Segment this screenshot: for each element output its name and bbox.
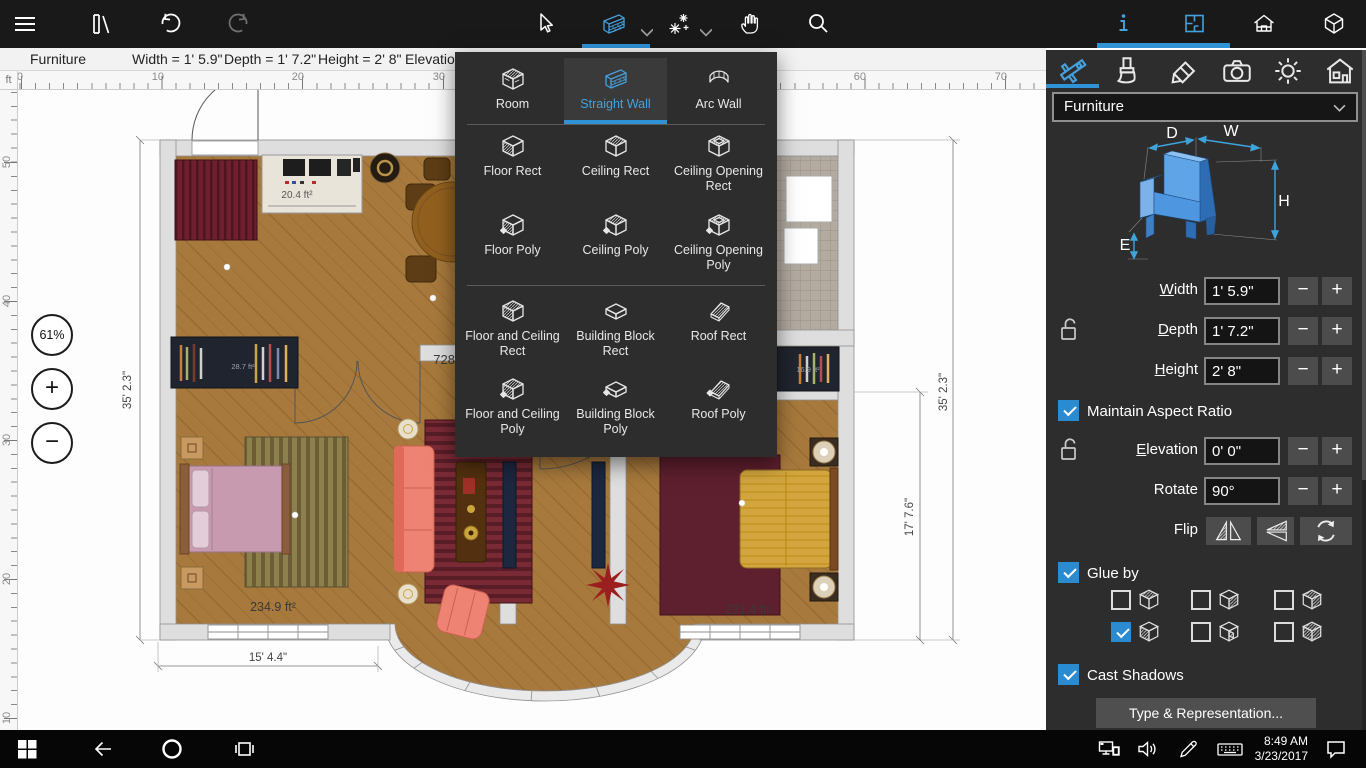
dimension-diagram: D W H E	[1046, 122, 1366, 270]
dim-right-inner-label: 17' 7.6"	[904, 498, 916, 536]
panel-scrollbar[interactable]	[1362, 50, 1366, 730]
tool-floor-poly[interactable]: Floor Poly	[461, 204, 564, 285]
status-height: Height = 2' 8"	[318, 51, 402, 67]
volume-icon[interactable]	[1136, 737, 1160, 761]
cast-shadows-label: Cast Shadows	[1087, 667, 1184, 684]
undo-icon[interactable]	[158, 11, 184, 37]
tool-floor-rect[interactable]: Floor Rect	[461, 125, 564, 204]
category-select[interactable]: Furniture	[1052, 92, 1358, 122]
windows-taskbar: 8:49 AM 3/23/2017	[0, 730, 1366, 768]
bed-yellow[interactable]	[740, 468, 838, 570]
flip-label: Flip	[1046, 521, 1198, 538]
zoom-in-button[interactable]: +	[31, 368, 73, 410]
diagram-height-label: H	[1278, 193, 1290, 210]
rotate-increment-button[interactable]: +	[1322, 477, 1352, 505]
notification-icon[interactable]	[1324, 737, 1348, 761]
building-block-poly-icon	[602, 376, 630, 402]
dim-bottom-label: 15' 4.4"	[249, 652, 287, 664]
shelf-area-label: 16.9 ft²	[796, 365, 820, 374]
tool-roof-rect[interactable]: Roof Rect	[667, 290, 770, 364]
ruler-unit-label: ft	[0, 71, 18, 90]
status-depth: Depth = 1' 7.2"	[224, 51, 316, 67]
floor-rect-icon	[499, 133, 527, 159]
roof-rect-icon	[705, 298, 733, 324]
dim-left-label: 35' 2.3"	[122, 371, 134, 409]
shelf-area-label: 28.7 ft²	[231, 362, 255, 371]
type-representation-button[interactable]: Type & Representation...	[1096, 698, 1316, 728]
start-button-icon[interactable]	[15, 737, 39, 761]
width-field[interactable]	[1204, 277, 1280, 305]
cortana-icon[interactable]	[160, 737, 184, 761]
smart-tools-icon[interactable]	[666, 11, 692, 37]
tv-console[interactable]	[262, 155, 362, 213]
width-row: Width − +	[1046, 277, 1366, 305]
status-width: Width = 1' 5.9"	[132, 51, 223, 67]
diagram-width-label: W	[1223, 123, 1239, 140]
clock-date: 3/23/2017	[1255, 749, 1308, 764]
zoom-out-button[interactable]: −	[31, 422, 73, 464]
view-active-underline	[1097, 43, 1230, 48]
side-table[interactable]	[398, 419, 418, 439]
glue-cube-right-icon	[1217, 588, 1241, 612]
maintain-aspect-ratio-label: Maintain Aspect Ratio	[1087, 403, 1232, 420]
view-3d-icon[interactable]	[1321, 11, 1347, 37]
flip-row: Flip	[1046, 517, 1366, 545]
smart-tools-chevron-icon[interactable]	[700, 20, 712, 46]
ceiling-rect-icon	[602, 133, 630, 159]
taskbar-clock[interactable]: 8:49 AM 3/23/2017	[1255, 734, 1308, 764]
wall-tool-dropdown: Room Straight Wall Arc Wall Floor Rect C…	[455, 52, 777, 457]
maintain-aspect-ratio-checkbox[interactable]	[1058, 400, 1079, 421]
glue-cell-checkbox[interactable]	[1111, 622, 1131, 642]
straight-wall-icon	[602, 66, 630, 92]
bedroom-left-area-label: 234.9 ft²	[250, 600, 296, 614]
elevation-label: Elevation	[1046, 441, 1198, 458]
chevron-down-icon	[1333, 104, 1346, 112]
tool-floor-ceiling-poly[interactable]: Floor and Ceiling Poly	[461, 368, 564, 442]
glue-by-checkbox[interactable]	[1058, 562, 1079, 583]
menu-icon[interactable]	[12, 11, 38, 37]
coffee-table[interactable]	[456, 462, 486, 562]
nightstand-lamp-right[interactable]	[810, 438, 838, 466]
tool-ceiling-poly[interactable]: Ceiling Poly	[564, 204, 667, 285]
tab-light-icon[interactable]	[1268, 54, 1308, 88]
rotate-90-button[interactable]	[1300, 517, 1352, 545]
floor-poly-icon	[499, 212, 527, 238]
network-icon[interactable]	[1097, 737, 1121, 761]
vertical-ruler: 50 40 30 20 10	[0, 90, 18, 730]
pen-icon[interactable]	[1176, 737, 1200, 761]
clock-time: 8:49 AM	[1255, 734, 1308, 749]
glue-cube-front-icon	[1217, 620, 1241, 644]
elevation-increment-button[interactable]: +	[1322, 437, 1352, 465]
ceiling-opening-rect-icon	[705, 133, 733, 159]
width-increment-button[interactable]: +	[1322, 277, 1352, 305]
select-cursor-icon[interactable]	[533, 11, 559, 37]
glue-cube-left-icon	[1137, 620, 1161, 644]
tool-ceiling-opening-rect[interactable]: Ceiling Opening Rect	[667, 125, 770, 204]
floor-and-ceiling-rect-icon	[499, 298, 527, 324]
living-area-label: 728	[433, 352, 455, 367]
rotate-row: Rotate − +	[1046, 477, 1366, 505]
wall-cabinet[interactable]	[503, 462, 516, 568]
glue-cell-checkbox[interactable]	[1191, 622, 1211, 642]
side-table[interactable]	[398, 584, 418, 604]
glue-cell-checkbox[interactable]	[1191, 590, 1211, 610]
depth-field[interactable]	[1204, 317, 1280, 345]
status-selection: Furniture	[30, 51, 86, 67]
tool-building-block-poly[interactable]: Building Block Poly	[564, 368, 667, 442]
bed-pink[interactable]	[180, 464, 290, 554]
glue-cell-checkbox[interactable]	[1111, 590, 1131, 610]
building-block-rect-icon	[602, 298, 630, 324]
tool-roof-poly[interactable]: Roof Poly	[667, 368, 770, 442]
room-icon	[499, 66, 527, 92]
depth-decrement-button[interactable]: −	[1288, 317, 1318, 345]
redo-icon[interactable]	[225, 11, 251, 37]
depth-label: Depth	[1046, 321, 1198, 338]
wall-tool-active-underline	[582, 44, 650, 48]
height-decrement-button[interactable]: −	[1288, 357, 1318, 385]
back-button-icon[interactable]	[91, 737, 115, 761]
tab-building-icon[interactable]	[1320, 54, 1360, 88]
status-elevation: Elevation	[405, 51, 463, 67]
glue-cube-top-icon	[1137, 588, 1161, 612]
tool-ceiling-opening-poly[interactable]: Ceiling Opening Poly	[667, 204, 770, 285]
plant-red[interactable]	[586, 563, 630, 607]
curtain[interactable]	[175, 160, 257, 240]
rotate-decrement-button[interactable]: −	[1288, 477, 1318, 505]
ceiling-poly-icon	[602, 212, 630, 238]
info-icon[interactable]	[1110, 11, 1136, 37]
depth-increment-button[interactable]: +	[1322, 317, 1352, 345]
depth-row: Depth − +	[1046, 317, 1366, 345]
armchair-illustration	[1140, 151, 1216, 239]
tool-straight-wall[interactable]: Straight Wall	[564, 58, 667, 124]
flip-vertical-button[interactable]	[1257, 517, 1294, 545]
wall-cabinet[interactable]	[592, 462, 605, 568]
search-icon[interactable]	[806, 11, 832, 37]
tool-ceiling-rect[interactable]: Ceiling Rect	[564, 125, 667, 204]
rotate-field[interactable]	[1204, 477, 1280, 505]
round-stove[interactable]	[370, 153, 400, 183]
nightstand[interactable]	[181, 567, 203, 589]
keyboard-icon[interactable]	[1216, 737, 1244, 761]
elevation-field[interactable]	[1204, 437, 1280, 465]
library-icon[interactable]	[89, 11, 115, 37]
glue-cube-top-right-icon	[1300, 588, 1324, 612]
height-field[interactable]	[1204, 357, 1280, 385]
plan-2d-view-icon[interactable]	[1182, 11, 1208, 37]
height-label: Height	[1046, 361, 1198, 378]
pan-hand-icon[interactable]	[738, 11, 764, 37]
elevation-view-icon[interactable]	[1251, 11, 1277, 37]
glue-cube-all-icon	[1300, 620, 1324, 644]
floor-and-ceiling-poly-icon	[499, 376, 527, 402]
inspector-panel: Furniture	[1046, 50, 1366, 730]
sofa[interactable]	[394, 446, 434, 572]
tab-edit-icon[interactable]	[1164, 54, 1204, 88]
tool-floor-ceiling-rect[interactable]: Floor and Ceiling Rect	[461, 290, 564, 364]
rotate-label: Rotate	[1046, 481, 1198, 498]
elevation-row: Elevation − +	[1046, 437, 1366, 465]
cast-shadows-checkbox[interactable]	[1058, 664, 1079, 685]
elevation-decrement-button[interactable]: −	[1288, 437, 1318, 465]
nightstand[interactable]	[181, 437, 203, 459]
tv-area-label: 20.4 ft²	[281, 190, 313, 201]
tool-building-block-rect[interactable]: Building Block Rect	[564, 290, 667, 364]
tool-room[interactable]: Room	[461, 58, 564, 124]
arc-wall-icon	[705, 66, 733, 92]
height-increment-button[interactable]: +	[1322, 357, 1352, 385]
wall-tool-chevron-icon[interactable]	[641, 20, 653, 46]
zoom-level-indicator[interactable]: 61%	[31, 314, 73, 356]
height-row: Height − +	[1046, 357, 1366, 385]
tab-camera-icon[interactable]	[1217, 54, 1257, 88]
glue-by-label: Glue by	[1087, 565, 1139, 582]
glue-cell-checkbox[interactable]	[1274, 622, 1294, 642]
tab-materials-icon[interactable]	[1107, 54, 1147, 88]
diagram-elevation-label: E	[1120, 237, 1131, 254]
task-view-icon[interactable]	[232, 737, 256, 761]
flip-horizontal-button[interactable]	[1206, 517, 1251, 545]
glue-cell-checkbox[interactable]	[1274, 590, 1294, 610]
roof-poly-icon	[705, 376, 733, 402]
nightstand-lamp-right[interactable]	[810, 573, 838, 601]
tool-arc-wall[interactable]: Arc Wall	[667, 58, 770, 124]
straight-wall-tool-icon[interactable]	[601, 11, 627, 37]
category-select-value: Furniture	[1064, 98, 1124, 115]
dim-right-outer-label: 35' 2.3"	[938, 373, 950, 411]
ceiling-opening-poly-icon	[705, 212, 733, 238]
bedroom-right-area-label: 231.4 ft²	[725, 603, 771, 617]
width-decrement-button[interactable]: −	[1288, 277, 1318, 305]
diagram-depth-label: D	[1166, 125, 1178, 142]
tab-active-underline	[1046, 84, 1099, 88]
tab-object-size-icon[interactable]	[1054, 54, 1094, 88]
app-top-bar	[0, 0, 1366, 48]
width-label: Width	[1046, 281, 1198, 298]
